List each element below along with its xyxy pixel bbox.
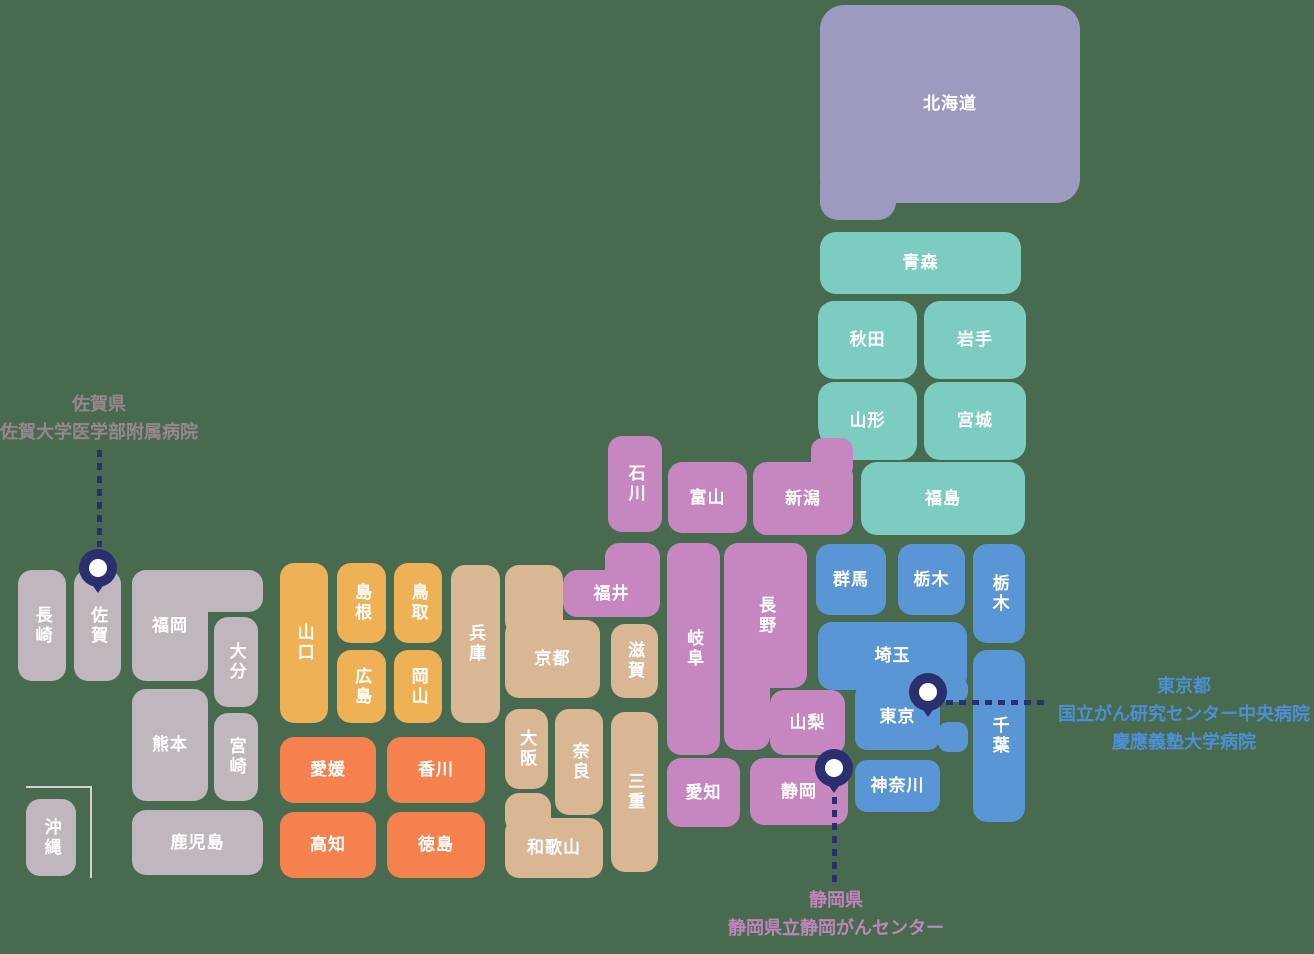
prefecture-label-wakayama: 和歌山 — [527, 837, 581, 858]
prefecture-label-miyagi: 宮城 — [957, 410, 993, 431]
shizuoka-pin-hole-icon — [825, 759, 843, 777]
prefecture-miyazaki[interactable]: 宮崎 — [214, 713, 258, 801]
prefecture-label-ehime: 愛媛 — [310, 759, 346, 780]
saga-hospital-name-1: 佐賀大学医学部附属病院 — [0, 418, 198, 446]
prefecture-tokushima[interactable]: 徳島 — [387, 812, 485, 878]
prefecture-akita[interactable]: 秋田 — [818, 301, 917, 379]
prefecture-fukushima[interactable]: 福島 — [861, 462, 1025, 535]
prefecture-gifu[interactable]: 岐阜 — [667, 543, 720, 755]
prefecture-tochigi-vertical[interactable]: 栃木 — [973, 544, 1025, 643]
prefecture-mie[interactable]: 三重 — [611, 712, 658, 872]
prefecture-hyogo[interactable]: 兵庫 — [451, 565, 500, 723]
prefecture-label-akita: 秋田 — [850, 329, 886, 350]
prefecture-label-aomori: 青森 — [903, 252, 939, 273]
prefecture-okayama[interactable]: 岡山 — [394, 650, 442, 723]
tokyo-pin[interactable] — [909, 673, 947, 711]
prefecture-nagasaki[interactable]: 長崎 — [18, 570, 66, 681]
saga-leader-dotted-line — [97, 450, 102, 547]
tokyo-hospital-name-2: 慶應義塾大学病院 — [1058, 728, 1310, 756]
prefecture-ishikawa[interactable]: 石川 — [608, 436, 662, 532]
shizuoka-annotation: 静岡県静岡県立静岡がんセンター — [728, 886, 944, 942]
prefecture-hokkaido[interactable]: 北海道 — [820, 5, 1080, 203]
tokyo-annotation: 東京都国立がん研究センター中央病院慶應義塾大学病院 — [1058, 672, 1310, 756]
prefecture-kyoto[interactable]: 京都 — [505, 620, 600, 698]
prefecture-chiba[interactable]: 千葉 — [973, 650, 1025, 822]
prefecture-tottori[interactable]: 鳥取 — [394, 563, 442, 643]
japan-map: 北海道青森秋田岩手山形宮城福島新潟石川富山福井岐阜長野山梨静岡愛知群馬栃木栃木埼… — [0, 0, 1314, 954]
prefecture-label-tochigi-vertical: 栃木 — [988, 574, 1009, 614]
prefecture-ehime[interactable]: 愛媛 — [280, 737, 376, 803]
prefecture-kochi[interactable]: 高知 — [280, 812, 376, 878]
prefecture-label-gifu: 岐阜 — [683, 629, 704, 669]
prefecture-label-aichi: 愛知 — [686, 782, 722, 803]
prefecture-label-nagano: 長野 — [755, 596, 776, 636]
prefecture-kanagawa[interactable]: 神奈川 — [855, 760, 940, 812]
prefecture-label-hiroshima: 広島 — [351, 667, 372, 707]
saga-pin-hole-icon — [89, 559, 107, 577]
prefecture-label-kochi: 高知 — [310, 834, 346, 855]
prefecture-label-tochigi: 栃木 — [914, 569, 950, 590]
prefecture-hiroshima[interactable]: 広島 — [337, 650, 386, 723]
prefecture-label-gunma: 群馬 — [833, 569, 869, 590]
prefecture-miyagi[interactable]: 宮城 — [924, 382, 1026, 460]
prefecture-label-yamanashi: 山梨 — [790, 712, 826, 733]
prefecture-label-osaka: 大阪 — [516, 729, 537, 769]
prefecture-toyama[interactable]: 富山 — [668, 462, 747, 533]
prefecture-label-tokushima: 徳島 — [418, 834, 454, 855]
okinawa-inset-divider-line — [26, 786, 92, 878]
prefecture-label-shimane: 島根 — [351, 583, 372, 623]
prefecture-label-kagawa: 香川 — [418, 759, 454, 780]
prefecture-label-kanagawa: 神奈川 — [871, 775, 925, 796]
prefecture-niigata[interactable]: 新潟 — [753, 462, 853, 535]
prefecture-yamaguchi[interactable]: 山口 — [280, 563, 328, 723]
prefecture-label-fukuoka: 福岡 — [152, 615, 188, 636]
prefecture-wakayama[interactable]: 和歌山 — [505, 818, 603, 878]
saga-pin[interactable] — [79, 549, 117, 587]
prefecture-label-toyama: 富山 — [690, 487, 726, 508]
prefecture-label-saitama: 埼玉 — [875, 645, 911, 666]
prefecture-label-okayama: 岡山 — [407, 667, 428, 707]
prefecture-aomori[interactable]: 青森 — [820, 232, 1021, 294]
prefecture-aichi[interactable]: 愛知 — [667, 758, 740, 827]
prefecture-label-kyoto: 京都 — [535, 648, 571, 669]
prefecture-kumamoto[interactable]: 熊本 — [132, 689, 208, 801]
prefecture-label-nara: 奈良 — [568, 742, 589, 782]
prefecture-label-miyazaki: 宮崎 — [225, 737, 246, 777]
prefecture-label-mie: 三重 — [624, 772, 645, 812]
prefecture-shiga[interactable]: 滋賀 — [611, 624, 658, 698]
prefecture-gunma[interactable]: 群馬 — [816, 544, 886, 615]
prefecture-yamanashi[interactable]: 山梨 — [770, 690, 845, 755]
tokyo-prefecture-name: 東京都 — [1058, 672, 1310, 700]
prefecture-label-ishikawa: 石川 — [624, 464, 645, 504]
prefecture-label-yamaguchi: 山口 — [293, 623, 314, 663]
prefecture-iwate[interactable]: 岩手 — [924, 301, 1026, 379]
prefecture-label-saga: 佐賀 — [87, 606, 108, 646]
tokyo-extension[interactable] — [938, 722, 968, 752]
prefecture-oita[interactable]: 大分 — [214, 617, 258, 707]
prefecture-label-chiba: 千葉 — [988, 716, 1009, 756]
prefecture-nara[interactable]: 奈良 — [555, 709, 603, 815]
prefecture-shimane[interactable]: 島根 — [337, 563, 386, 643]
prefecture-label-kagoshima: 鹿児島 — [171, 832, 225, 853]
prefecture-osaka[interactable]: 大阪 — [505, 709, 548, 789]
saga-prefecture-name: 佐賀県 — [0, 390, 198, 418]
saga-annotation: 佐賀県佐賀大学医学部附属病院 — [0, 390, 198, 446]
prefecture-label-kumamoto: 熊本 — [152, 734, 188, 755]
prefecture-tochigi[interactable]: 栃木 — [898, 544, 965, 615]
prefecture-kagoshima[interactable]: 鹿児島 — [132, 810, 263, 875]
prefecture-label-shiga: 滋賀 — [624, 641, 645, 681]
tokyo-pin-hole-icon — [919, 683, 937, 701]
shizuoka-hospital-name-1: 静岡県立静岡がんセンター — [728, 914, 944, 942]
prefecture-label-tottori: 鳥取 — [407, 583, 428, 623]
shizuoka-pin[interactable] — [815, 749, 853, 787]
prefecture-label-iwate: 岩手 — [957, 329, 993, 350]
tokyo-hospital-name-1: 国立がん研究センター中央病院 — [1058, 700, 1310, 728]
prefecture-fukui[interactable]: 福井 — [563, 570, 660, 617]
prefecture-nagano[interactable]: 長野 — [724, 543, 807, 688]
shizuoka-prefecture-name: 静岡県 — [728, 886, 944, 914]
prefecture-label-fukui: 福井 — [594, 583, 630, 604]
prefecture-label-oita: 大分 — [225, 642, 246, 682]
prefecture-label-hokkaido: 北海道 — [923, 93, 977, 114]
prefecture-label-shizuoka: 静岡 — [781, 781, 817, 802]
prefecture-kagawa[interactable]: 香川 — [387, 737, 485, 803]
shizuoka-leader-dotted-line — [832, 797, 837, 886]
prefecture-label-nagasaki: 長崎 — [31, 606, 52, 646]
prefecture-label-niigata: 新潟 — [785, 488, 821, 509]
prefecture-fukuoka[interactable]: 福岡 — [132, 570, 208, 681]
prefecture-label-fukushima: 福島 — [925, 488, 961, 509]
prefecture-label-yamagata: 山形 — [850, 410, 886, 431]
tokyo-leader-dotted-line — [946, 700, 1046, 705]
prefecture-label-hyogo: 兵庫 — [465, 624, 486, 664]
